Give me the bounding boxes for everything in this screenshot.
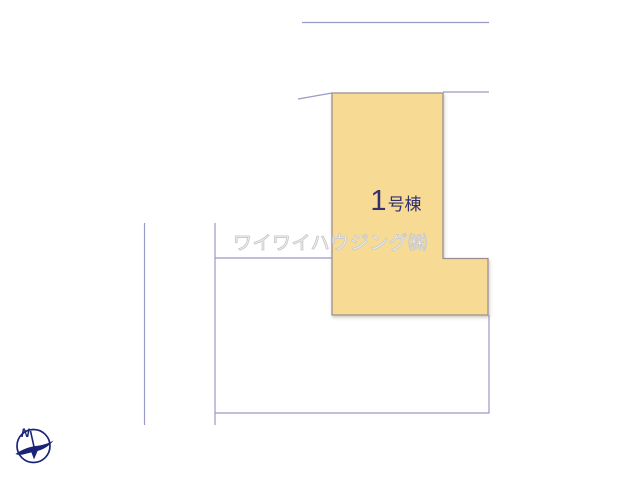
compass-tail-shape — [31, 450, 39, 460]
company-watermark: ワイワイハウジング㈱ — [233, 228, 428, 255]
boundary-line-slope-left — [298, 93, 332, 99]
building-plot-suffix: 号棟 — [388, 195, 422, 214]
compass-north-label: N — [21, 426, 30, 440]
site-plan-canvas: N 1号棟 ワイワイハウジング㈱ — [0, 0, 640, 480]
building-plot-number: 1 — [370, 185, 387, 217]
building-plot-label: 1号棟 — [332, 186, 460, 221]
compass-icon: N — [16, 426, 54, 463]
